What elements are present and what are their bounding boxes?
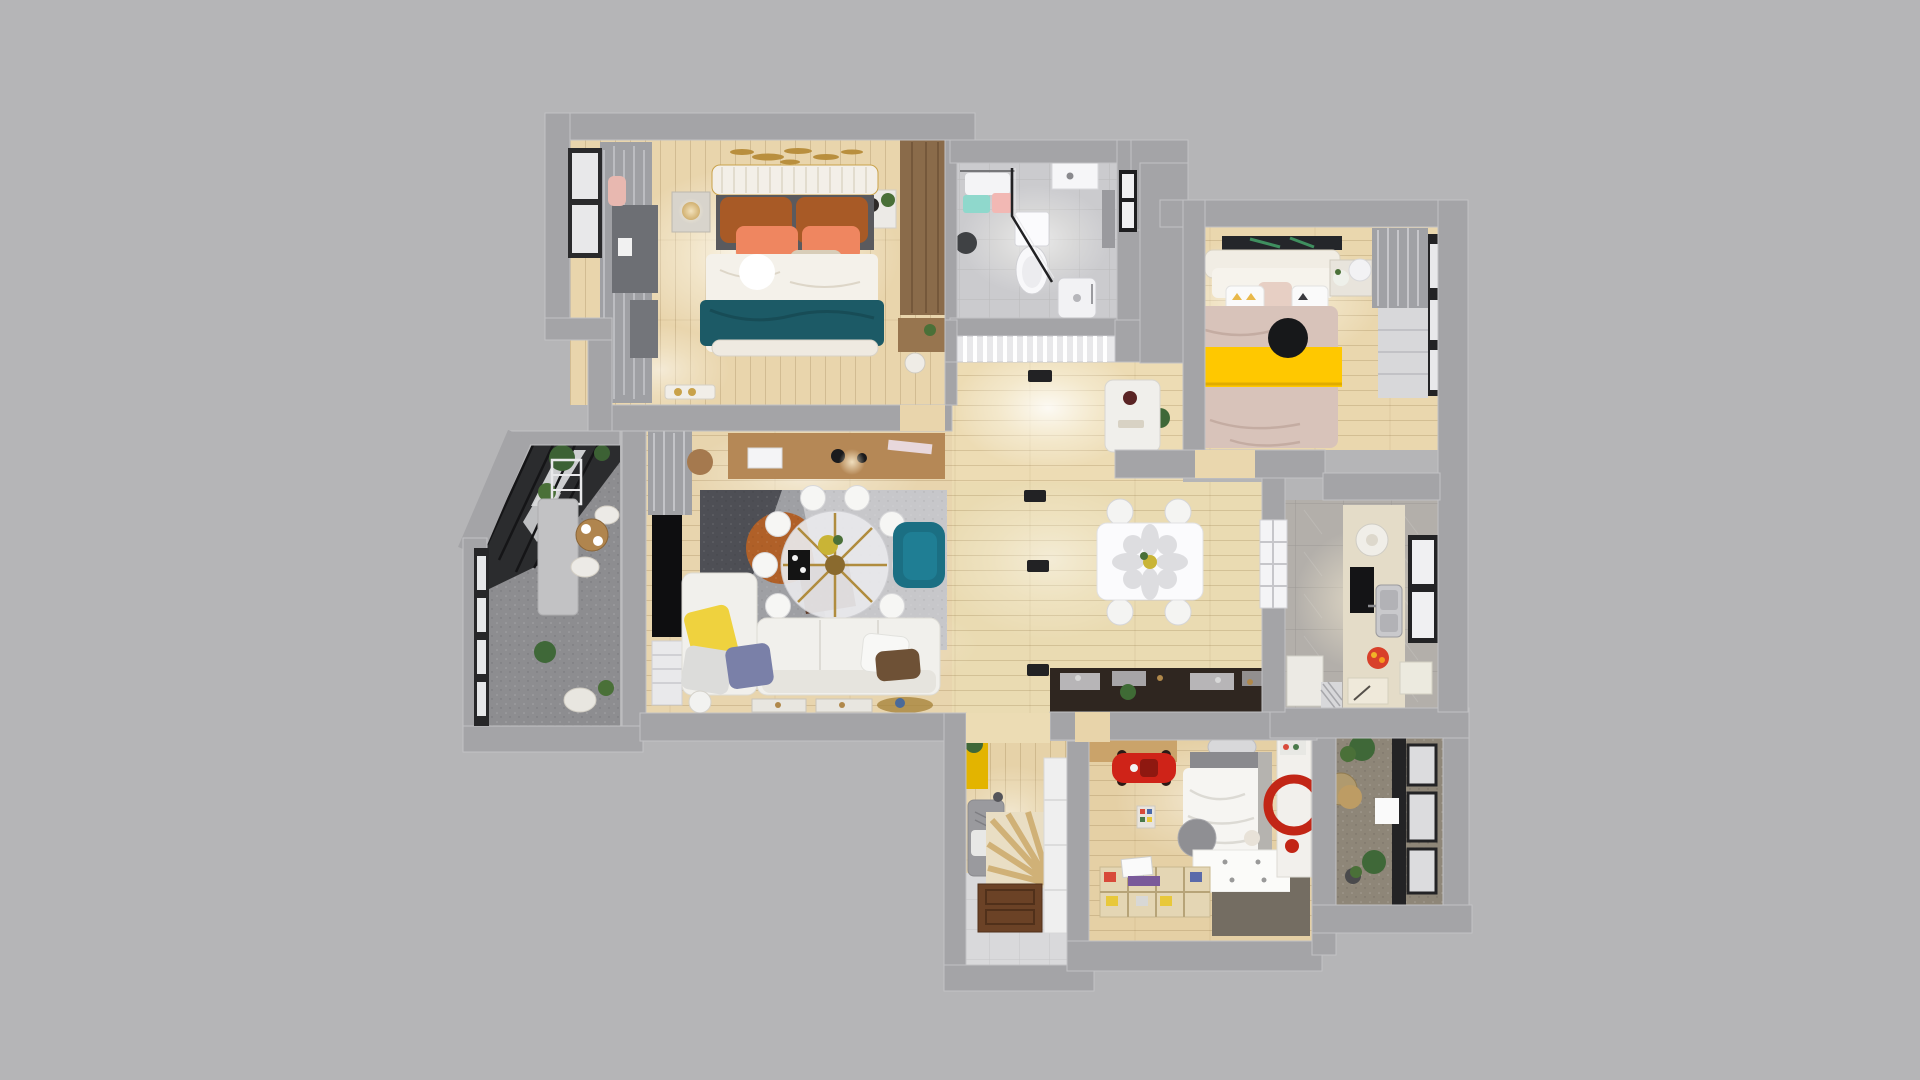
plant xyxy=(1120,684,1136,700)
towel-pink xyxy=(992,193,1012,213)
chair xyxy=(1165,599,1191,625)
towel-white xyxy=(965,173,1010,195)
balcony-west-windows xyxy=(474,548,489,726)
floor-plan-render xyxy=(0,0,1920,1080)
plant xyxy=(598,680,614,696)
plant xyxy=(1340,746,1356,762)
vanity xyxy=(1052,163,1098,189)
gold-nest xyxy=(877,697,933,713)
window-east xyxy=(1372,228,1440,398)
plant xyxy=(534,641,556,663)
tray xyxy=(788,550,810,580)
hall-sideboard xyxy=(1105,380,1160,452)
apartment-plan xyxy=(0,0,1920,1080)
black-ceiling-light xyxy=(1268,318,1308,358)
nightstand-right xyxy=(1330,259,1372,296)
entry-door xyxy=(978,884,1042,932)
kitchen-glazed-door xyxy=(1260,520,1287,608)
plant xyxy=(594,445,610,461)
blue-pillow xyxy=(724,642,774,690)
mini-art xyxy=(1137,806,1155,828)
media-unit xyxy=(652,641,682,705)
storage-cabinet xyxy=(538,499,578,615)
side-cabinet xyxy=(1102,190,1115,248)
stool xyxy=(905,353,925,373)
curtains xyxy=(1372,228,1428,308)
brown-pillow xyxy=(875,648,921,682)
ceiling-grille xyxy=(957,336,1115,362)
chair xyxy=(1165,499,1191,525)
bathroom-window xyxy=(1119,170,1137,232)
lounge-chair xyxy=(564,688,596,712)
towel-teal xyxy=(963,195,990,213)
white-unit xyxy=(1375,798,1399,824)
red-toy-car xyxy=(1112,750,1176,786)
teal-throw xyxy=(700,300,884,346)
tv xyxy=(652,515,682,637)
nightstand-left xyxy=(672,192,710,232)
pouf xyxy=(687,449,713,475)
wall-art xyxy=(1222,236,1342,250)
lower-cabinet xyxy=(1348,678,1388,704)
console-north xyxy=(728,433,945,479)
plant xyxy=(1362,850,1386,874)
bar-counter xyxy=(1050,668,1270,712)
chair xyxy=(1107,599,1133,625)
vase xyxy=(1123,391,1137,405)
robe-chair xyxy=(608,176,626,206)
side-table xyxy=(1338,785,1362,809)
fruit-plate xyxy=(1367,647,1389,669)
waste-bin xyxy=(955,232,977,254)
gray-rug-2 xyxy=(630,300,658,358)
laptop xyxy=(1121,856,1153,877)
teal-armchair xyxy=(893,522,945,588)
keyboard xyxy=(1128,876,1160,886)
round-lamp xyxy=(1349,259,1371,281)
floor-grate xyxy=(1321,682,1342,708)
dressing-desk xyxy=(898,318,945,352)
chair xyxy=(571,557,599,577)
headboard xyxy=(712,165,878,195)
bed-2 xyxy=(1192,250,1342,448)
teddy-bear xyxy=(1244,830,1260,846)
wall-cabinet xyxy=(1400,662,1432,694)
master-bed xyxy=(700,165,884,356)
master-window xyxy=(568,148,602,258)
ceiling-light xyxy=(739,254,775,290)
platform-frame xyxy=(1212,892,1310,936)
chair xyxy=(1107,499,1133,525)
foot-bench xyxy=(712,340,878,356)
base-cabinet xyxy=(1287,656,1323,706)
plant xyxy=(538,483,556,501)
kitchen-window xyxy=(1408,535,1438,643)
round-table xyxy=(576,519,608,551)
plant xyxy=(881,193,895,207)
yellow-blanket xyxy=(1192,347,1342,387)
